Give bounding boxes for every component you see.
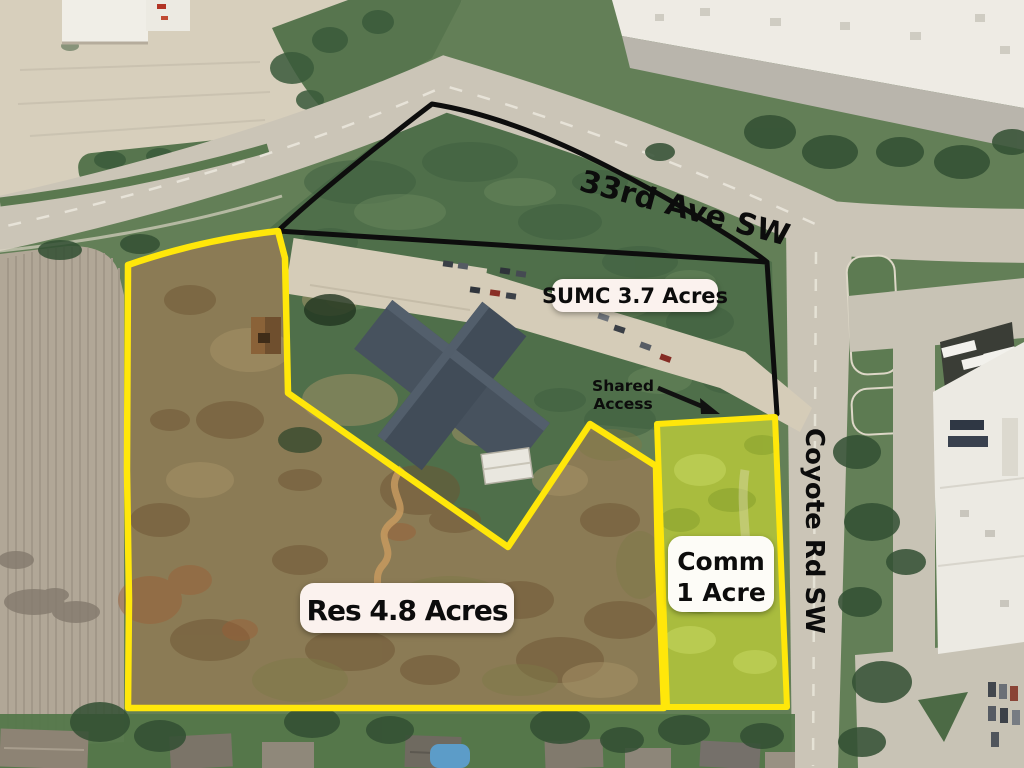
white-shed — [481, 448, 533, 484]
shared-access-label-line2: Access — [593, 395, 652, 413]
big-box-building — [933, 342, 1024, 654]
comm-parcel-label-line2: 1 Acre — [676, 578, 766, 607]
sumc-parcel-label: SUMC 3.7 Acres — [542, 284, 728, 308]
plowed-field — [0, 246, 124, 748]
swimming-pool — [430, 744, 470, 768]
aerial-site-map: SUMC 3.7 Acres Res 4.8 Acres Comm 1 Acre… — [0, 0, 1024, 768]
coyote-rd-label: Coyote Rd SW — [799, 428, 829, 634]
comm-parcel-label-line1: Comm — [677, 547, 765, 576]
red-car — [157, 4, 166, 9]
shared-access-label-line1: Shared — [592, 377, 654, 395]
small-barn — [251, 317, 281, 354]
res-parcel-label: Res 4.8 Acres — [306, 594, 507, 627]
